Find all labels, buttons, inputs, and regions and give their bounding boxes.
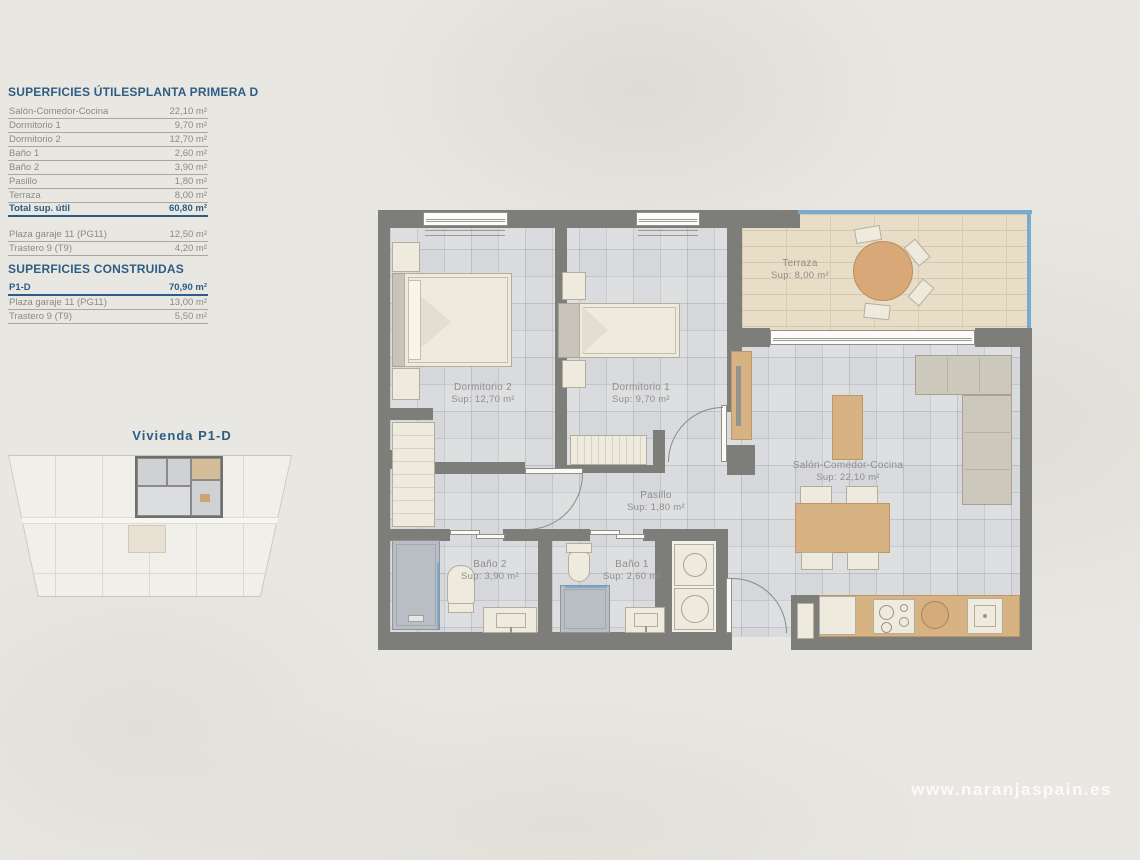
sofa-right [962,395,1012,505]
bed-headboard [558,303,580,358]
table-row-total: P1-D70,90 m² [8,282,208,296]
sliding-door-bano1 [616,534,645,539]
nightstand [562,272,586,300]
burner [899,617,909,627]
terrace-round-table [853,241,913,301]
shower-bano1 [560,585,610,633]
table-row: Baño 23,90 m² [8,161,208,175]
table-row: Trastero 9 (T9)4,20 m² [8,242,208,256]
window-sill [638,230,698,236]
superficies-construidas-header: SUPERFICIES CONSTRUIDAS [8,262,208,276]
shower-drain [408,615,424,622]
key-unit-bedroom [167,458,191,486]
sink-bano1 [625,607,665,633]
terrace-railing-top [798,210,1032,214]
burner [879,605,894,620]
wardrobe-dormitorio2 [392,422,435,527]
table-row: Plaza garaje 11 (PG11)13,00 m² [8,296,208,310]
round-sink [921,601,949,629]
tv-screen [736,366,741,426]
dining-chair [800,486,832,504]
table-row: Dormitorio 19,70 m² [8,119,208,133]
table-title: SUPERFICIES ÚTILES [8,85,138,99]
double-bed [404,273,512,367]
key-plan-corridor [20,517,280,524]
wall-right [1020,347,1032,650]
wall-dormitorio2-south [433,462,525,474]
sliding-door-bano2 [476,534,505,539]
shower-bano2 [392,540,440,630]
table-row-total: Total sup. útil60,80 m² [8,203,208,217]
fridge [819,596,856,635]
key-plan-line [30,573,270,574]
superficies-construidas-table: SUPERFICIES CONSTRUIDAS P1-D70,90 m² Pla… [8,262,208,324]
terrace-chair [863,303,890,321]
sofa-top [915,355,1012,395]
table-title: SUPERFICIES CONSTRUIDAS [8,262,184,276]
terrace-railing-right [1027,210,1031,330]
blanket-fold [421,296,451,348]
key-unit-hall [137,486,191,516]
key-unit-table [200,494,210,502]
key-plan-stair-core [128,525,166,553]
nightstand [392,368,420,400]
watermark: www.naranjaspain.es [872,780,1112,800]
plan-name: PLANTA PRIMERA D [138,85,259,99]
key-unit-terrace [191,458,221,480]
wall-stub [653,430,665,473]
wall-terrace-bottom [975,328,1032,347]
table-row: Plaza garaje 11 (PG11)12,50 m² [8,228,208,242]
single-bed [579,303,680,358]
table-row: Terraza8,00 m² [8,189,208,203]
key-plan-highlighted-unit [135,456,223,518]
dining-chair [847,552,879,570]
window-dormitorio2 [423,212,508,226]
key-unit-bedroom [137,458,167,486]
wall-bathroom-top [503,529,590,541]
table-row: Trastero 9 (T9)5,50 m² [8,310,208,324]
window-sill [425,230,505,236]
superficies-utiles-header: SUPERFICIES ÚTILES PLANTA PRIMERA D [8,85,208,99]
key-plan-building [8,455,292,597]
room-label-bano2: Baño 2 Sup: 3,90 m² [440,558,540,584]
tv-unit [731,351,752,440]
sliding-glass-door [770,330,975,345]
pillow [408,280,421,360]
window-dormitorio1 [636,212,700,226]
tap [510,627,512,633]
room-label-dormitorio2: Dormitorio 2 Sup: 12,70 m² [423,381,543,407]
wardrobe-dormitorio1 [570,435,647,465]
shower-glass [565,586,607,588]
wall-bottom [378,632,732,650]
room-label-salon: Salón-Comedor-Cocina Sup: 22,10 m² [778,459,918,485]
wall-bathroom-divider [538,541,552,632]
room-label-terraza: Terraza Sup: 8,00 m² [750,257,850,283]
toilet-base [448,603,474,613]
table-row: Baño 12,60 m² [8,147,208,161]
wall-dormitorio2-south [378,408,433,420]
superficies-utiles-table: SUPERFICIES ÚTILES PLANTA PRIMERA D Saló… [8,85,208,256]
dryer [674,588,714,630]
sink-bano2 [483,607,537,633]
coffee-table [832,395,863,460]
page: SUPERFICIES ÚTILES PLANTA PRIMERA D Saló… [0,0,1140,860]
dining-table [795,503,890,553]
kitchen-closet [797,603,814,639]
wall-left [378,210,390,650]
table-row: Pasillo1,80 m² [8,175,208,189]
room-label-pasillo: Pasillo Sup: 1,80 m² [606,489,706,515]
tap [645,626,647,632]
table-row: Dormitorio 212,70 m² [8,133,208,147]
kitchen-sink [967,598,1003,634]
burner [900,604,908,612]
shower-glass [437,563,439,629]
burner [881,622,892,633]
dining-chair [801,552,833,570]
floor-plan: Terraza Sup: 8,00 m² Dormitorio 2 Sup: 1… [378,207,1035,651]
room-label-bano1: Baño 1 Sup: 2,60 m² [582,558,682,584]
wall-stub [727,445,755,475]
cooktop [873,599,915,634]
key-plan-title: Vivienda P1-D [82,428,282,443]
table-row: Salón-Comedor-Cocina22,10 m² [8,105,208,119]
dining-chair [846,486,878,504]
blanket-fold [582,306,608,354]
room-label-dormitorio1: Dormitorio 1 Sup: 9,70 m² [581,381,701,407]
nightstand [392,242,420,272]
drain [983,614,987,618]
